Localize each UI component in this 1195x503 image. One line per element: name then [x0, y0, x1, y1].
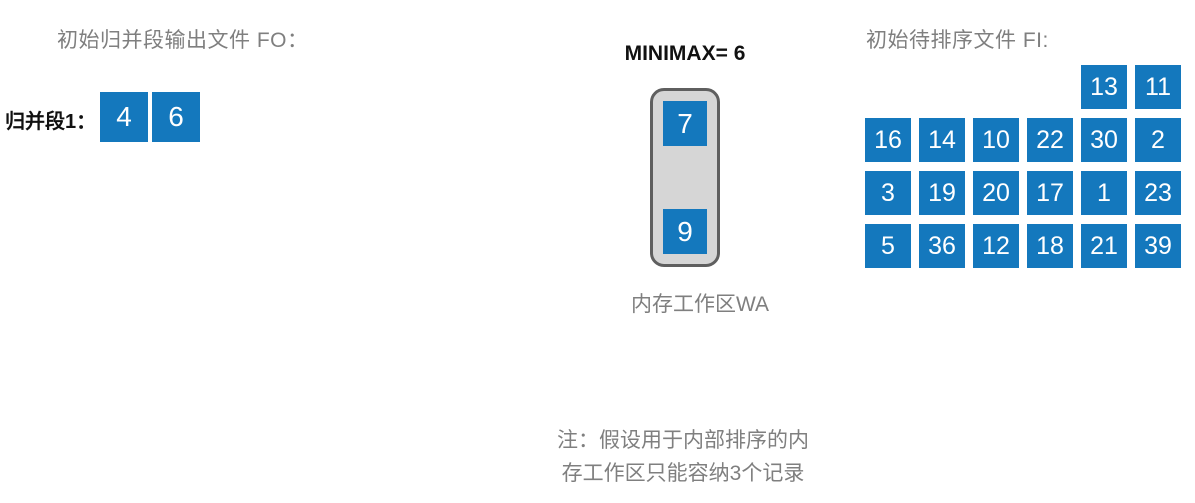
fo-record-box: 6	[152, 92, 200, 142]
merge-segment-1-label: 归并段1：	[5, 105, 96, 134]
fi-record-box: 18	[1027, 224, 1073, 268]
fi-record-box: 39	[1135, 224, 1181, 268]
fi-record-box: 12	[973, 224, 1019, 268]
fi-record-box: 11	[1135, 65, 1181, 109]
fi-record-box: 19	[919, 171, 965, 215]
fi-record-box: 2	[1135, 118, 1181, 162]
fi-record-box: 3	[865, 171, 911, 215]
fi-record-box: 14	[919, 118, 965, 162]
fi-grid: 131116141022302319201712353612182139	[865, 65, 1181, 268]
fi-record-box: 1	[1081, 171, 1127, 215]
fi-record-box: 16	[865, 118, 911, 162]
note-line-2: 存工作区只能容纳3个记录	[493, 457, 873, 490]
fi-record-box: 17	[1027, 171, 1073, 215]
fi-record-box: 10	[973, 118, 1019, 162]
fi-record-box: 20	[973, 171, 1019, 215]
fi-record-box: 13	[1081, 65, 1127, 109]
fo-output-file-title: 初始归并段输出文件 FO：	[57, 24, 309, 54]
note-line-1: 注：假设用于内部排序的内	[493, 424, 873, 457]
fo-segment-boxes: 46	[100, 92, 200, 142]
fi-record-box: 23	[1135, 171, 1181, 215]
fi-record-box: 36	[919, 224, 965, 268]
fi-record-box: 21	[1081, 224, 1127, 268]
wa-record-box: 7	[663, 101, 707, 146]
fi-input-file-title: 初始待排序文件 FI:	[866, 24, 1049, 54]
note-text: 注：假设用于内部排序的内 存工作区只能容纳3个记录	[493, 424, 873, 490]
fi-record-box: 30	[1081, 118, 1127, 162]
memory-work-area: 79	[650, 88, 720, 267]
wa-record-box: 9	[663, 209, 707, 254]
memory-work-area-caption: 内存工作区WA	[592, 288, 808, 318]
fi-record-box: 5	[865, 224, 911, 268]
fi-record-box: 22	[1027, 118, 1073, 162]
fo-record-box: 4	[100, 92, 148, 142]
minimax-label: MINIMAX= 6	[577, 42, 793, 66]
